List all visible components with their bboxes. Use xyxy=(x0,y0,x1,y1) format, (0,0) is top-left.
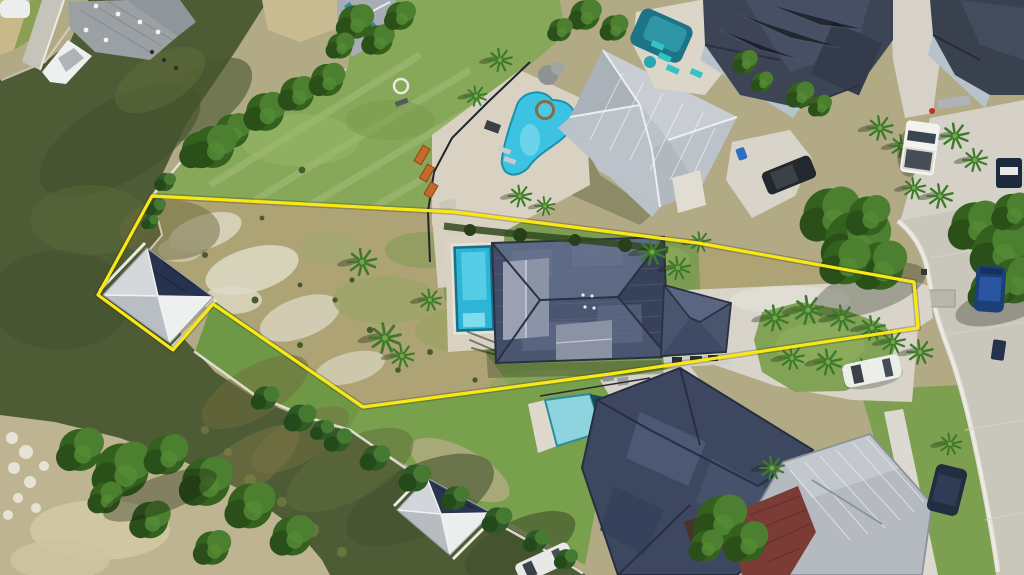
blue-car-street xyxy=(973,265,1006,313)
mailbox xyxy=(921,269,927,275)
golf-cart xyxy=(996,158,1022,188)
storm-drain xyxy=(928,290,955,307)
red-shrub xyxy=(929,108,935,114)
boat-canopy xyxy=(0,0,30,18)
trash-bin xyxy=(991,339,1007,361)
aerial-photo-canvas xyxy=(0,0,1024,575)
aerial-scene xyxy=(0,0,1024,575)
pool xyxy=(451,243,496,333)
spa xyxy=(537,102,554,119)
